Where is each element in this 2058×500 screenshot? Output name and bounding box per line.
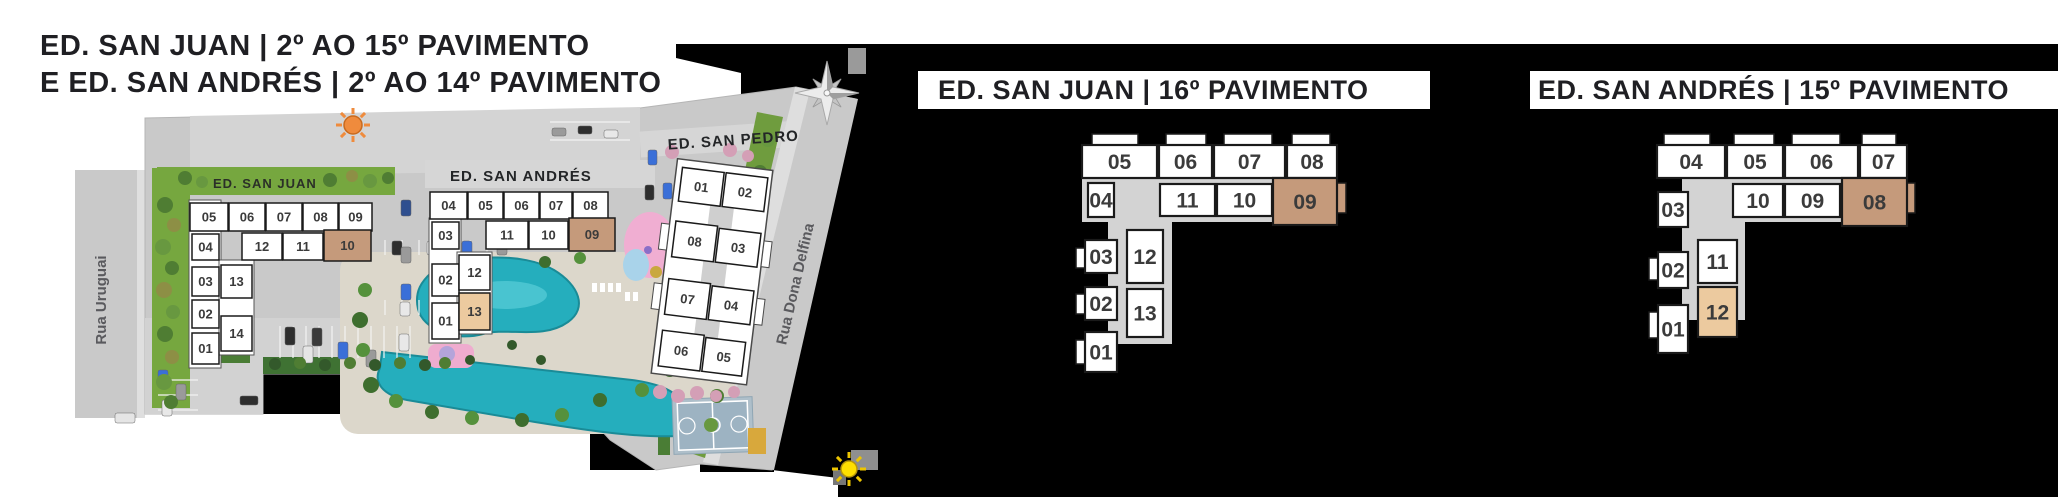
svg-text:08: 08 (686, 233, 702, 250)
svg-text:08: 08 (313, 210, 327, 225)
unit-02[interactable]: 02 (1085, 287, 1117, 320)
svg-text:14: 14 (229, 326, 244, 341)
label-ed-san-andres: ED. SAN ANDRÉS (450, 168, 592, 185)
svg-text:02: 02 (1661, 260, 1684, 283)
unit-09[interactable]: 09 (1273, 178, 1337, 225)
unit-08[interactable]: 08 (303, 203, 338, 231)
svg-text:03: 03 (1661, 199, 1684, 222)
svg-text:13: 13 (1133, 303, 1156, 326)
unit-01[interactable]: 01 (1658, 305, 1688, 353)
unit-09[interactable]: 09 (569, 218, 615, 251)
unit-01[interactable]: 01 (1085, 332, 1117, 372)
unit-12[interactable]: 12 (242, 233, 282, 260)
svg-text:08: 08 (1300, 151, 1324, 174)
svg-text:06: 06 (240, 210, 254, 225)
unit-08-balcony (1907, 183, 1915, 213)
unit-05[interactable]: 05 (190, 203, 228, 231)
unit-05[interactable]: 05 (468, 192, 503, 219)
unit-09-balcony (1337, 183, 1346, 213)
unit-12[interactable]: 12 (1127, 230, 1163, 283)
svg-text:03: 03 (198, 274, 212, 289)
unit-13[interactable]: 13 (1127, 289, 1163, 337)
svg-text:06: 06 (673, 342, 689, 359)
unit-02[interactable]: 02 (722, 173, 768, 212)
svg-text:11: 11 (500, 228, 514, 243)
svg-text:12: 12 (467, 265, 481, 280)
header-line1: ED. SAN JUAN | 2º AO 15º PAVIMENTO (40, 30, 590, 62)
unit-08[interactable]: 08 (1287, 145, 1337, 178)
svg-text:05: 05 (202, 210, 216, 225)
svg-text:04: 04 (441, 198, 456, 213)
svg-text:09: 09 (1293, 191, 1316, 214)
svg-text:04: 04 (1679, 151, 1703, 174)
svg-text:01: 01 (1089, 342, 1113, 365)
unit-03[interactable]: 03 (192, 267, 219, 296)
label-rua-uruguai: Rua Uruguai (93, 255, 110, 344)
svg-text:02: 02 (438, 273, 452, 288)
svg-text:06: 06 (1174, 151, 1197, 174)
svg-text:12: 12 (1133, 246, 1156, 269)
svg-text:04: 04 (723, 297, 740, 314)
unit-06[interactable]: 06 (658, 330, 704, 371)
unit-01[interactable]: 01 (678, 167, 724, 206)
svg-text:09: 09 (348, 210, 362, 225)
unit-07[interactable]: 07 (664, 279, 710, 320)
svg-text:07: 07 (1872, 151, 1895, 174)
svg-text:05: 05 (716, 349, 732, 366)
unit-10[interactable]: 10 (1217, 184, 1272, 216)
unit-02[interactable]: 02 (1658, 252, 1688, 288)
svg-text:08: 08 (1863, 192, 1887, 215)
svg-text:06: 06 (1810, 151, 1833, 174)
svg-text:05: 05 (1743, 151, 1767, 174)
unit-01[interactable]: 01 (192, 333, 219, 364)
svg-text:07: 07 (277, 210, 291, 225)
unit-12[interactable]: 12 (1698, 287, 1737, 337)
gray-block (848, 48, 866, 74)
svg-text:13: 13 (467, 304, 481, 319)
svg-text:09: 09 (585, 227, 599, 242)
svg-text:08: 08 (583, 198, 597, 213)
unit-04[interactable]: 04 (708, 286, 754, 325)
unit-04[interactable]: 04 (430, 192, 467, 219)
unit-02[interactable]: 02 (192, 300, 219, 328)
unit-10[interactable]: 10 (529, 221, 568, 249)
unit-09[interactable]: 09 (1785, 184, 1840, 217)
plan1-title: ED. SAN JUAN | 16º PAVIMENTO (938, 75, 1369, 105)
curb (137, 170, 145, 418)
svg-text:07: 07 (1238, 151, 1261, 174)
site-plan: 0102080307040605 05060708090412111003020… (75, 87, 858, 470)
unit-08[interactable]: 08 (573, 192, 608, 219)
label-ed-san-juan: ED. SAN JUAN (213, 176, 317, 191)
unit-10[interactable]: 10 (1733, 184, 1783, 217)
svg-text:02: 02 (1089, 293, 1112, 316)
svg-text:01: 01 (438, 314, 452, 329)
svg-text:13: 13 (229, 274, 243, 289)
plan2-title: ED. SAN ANDRÉS | 15º PAVIMENTO (1538, 74, 2009, 105)
unit-03[interactable]: 03 (1085, 240, 1117, 273)
unit-03[interactable]: 03 (1658, 192, 1688, 227)
unit-07[interactable]: 07 (1214, 145, 1285, 178)
svg-text:01: 01 (198, 341, 212, 356)
unit-13[interactable]: 13 (459, 293, 490, 330)
unit-11[interactable]: 11 (486, 221, 528, 249)
unit-06[interactable]: 06 (229, 203, 265, 231)
svg-text:11: 11 (1176, 190, 1199, 213)
unit-05[interactable]: 05 (702, 338, 746, 377)
svg-text:03: 03 (438, 228, 452, 243)
unit-14[interactable]: 14 (221, 316, 252, 351)
svg-text:12: 12 (1706, 302, 1729, 325)
svg-text:10: 10 (541, 228, 555, 243)
unit-06[interactable]: 06 (1159, 145, 1212, 178)
unit-04[interactable]: 04 (1657, 145, 1725, 178)
unit-07[interactable]: 07 (1860, 145, 1907, 178)
unit-01[interactable]: 01 (432, 303, 459, 339)
unit-06[interactable]: 06 (504, 192, 539, 219)
black-backdrop (676, 44, 2058, 497)
unit-08[interactable]: 08 (1842, 178, 1907, 226)
unit-11[interactable]: 11 (1160, 184, 1215, 216)
svg-text:10: 10 (1233, 190, 1256, 213)
unit-03[interactable]: 03 (715, 228, 761, 267)
unit-05[interactable]: 05 (1082, 145, 1157, 178)
unit-05[interactable]: 05 (1727, 145, 1783, 178)
svg-text:12: 12 (255, 239, 269, 254)
svg-text:09: 09 (1801, 190, 1824, 213)
unit-03[interactable]: 03 (432, 222, 459, 249)
svg-text:06: 06 (514, 198, 528, 213)
svg-text:11: 11 (296, 239, 310, 254)
svg-text:05: 05 (1108, 151, 1132, 174)
unit-04[interactable]: 04 (192, 234, 219, 260)
svg-text:01: 01 (1661, 319, 1685, 342)
unit-09[interactable]: 09 (339, 203, 372, 231)
unit-10[interactable]: 10 (324, 230, 371, 261)
svg-text:03: 03 (1089, 246, 1112, 269)
svg-text:10: 10 (340, 238, 354, 253)
unit-08[interactable]: 08 (672, 221, 718, 262)
flower-bed (748, 428, 766, 454)
unit-07[interactable]: 07 (266, 203, 302, 231)
availability-map: ED. SAN JUAN | 2º AO 15º PAVIMENTO E ED.… (0, 0, 2058, 500)
unit-04[interactable]: 04 (1088, 183, 1114, 217)
header-line2: E ED. SAN ANDRÉS | 2º AO 14º PAVIMENTO (40, 65, 661, 99)
unit-11[interactable]: 11 (283, 233, 323, 260)
unit-11[interactable]: 11 (1698, 240, 1737, 283)
svg-text:02: 02 (737, 184, 753, 201)
svg-text:04: 04 (1089, 190, 1113, 213)
svg-text:04: 04 (198, 240, 213, 255)
svg-text:07: 07 (549, 198, 563, 213)
svg-text:01: 01 (693, 179, 709, 196)
unit-02[interactable]: 02 (432, 264, 459, 296)
svg-text:11: 11 (1706, 251, 1729, 274)
unit-06[interactable]: 06 (1785, 145, 1858, 178)
svg-text:07: 07 (679, 291, 695, 308)
unit-12[interactable]: 12 (459, 255, 490, 290)
svg-text:03: 03 (730, 240, 746, 257)
svg-text:05: 05 (478, 198, 492, 213)
unit-13[interactable]: 13 (221, 265, 252, 298)
unit-07[interactable]: 07 (540, 192, 572, 219)
svg-text:02: 02 (198, 307, 212, 322)
svg-text:10: 10 (1746, 190, 1769, 213)
